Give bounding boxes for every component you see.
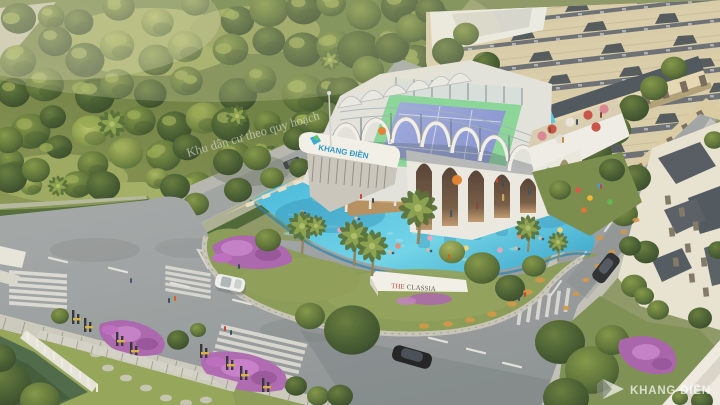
svg-text:KHANG ĐIỀN: KHANG ĐIỀN (630, 384, 711, 397)
